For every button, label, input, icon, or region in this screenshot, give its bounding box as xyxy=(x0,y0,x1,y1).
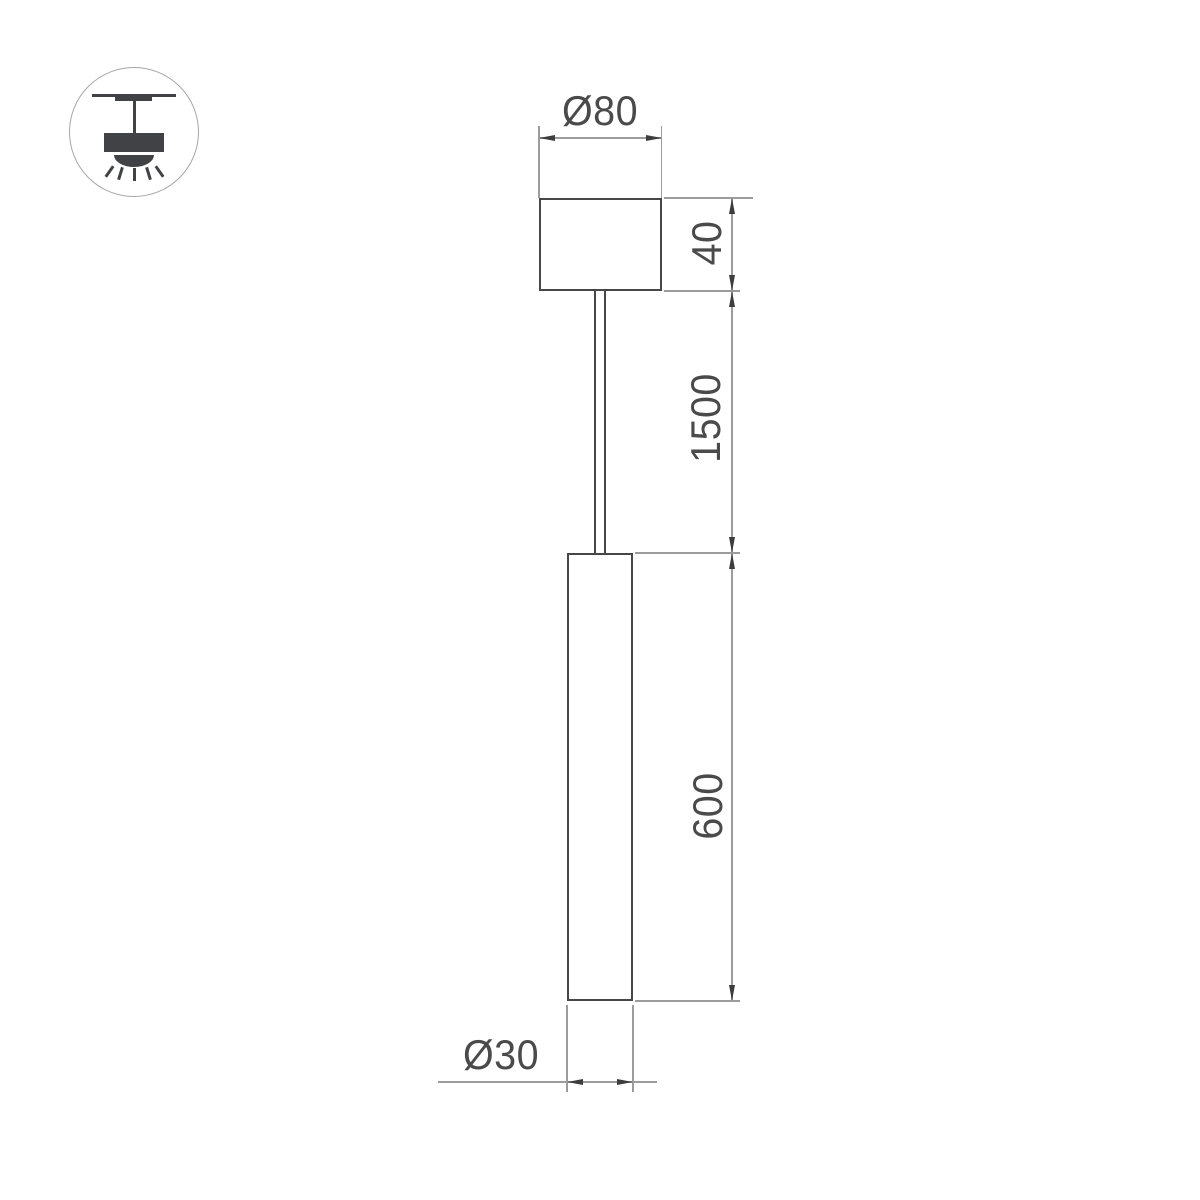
label-suspension-length: 1500 xyxy=(680,343,732,493)
arrow-left-icon xyxy=(539,135,555,141)
ext-line-tube-top xyxy=(635,552,740,554)
ext-line-tube-bottom xyxy=(635,1000,740,1002)
canopy-outline xyxy=(539,198,662,291)
lamp-dome-icon xyxy=(114,155,154,167)
light-ray-icon xyxy=(145,166,152,179)
dim-line-canopy-diameter xyxy=(539,137,662,139)
tube-outline xyxy=(567,553,633,1001)
light-ray-icon xyxy=(104,165,114,177)
pendant-dimension-drawing: Ø80 40 1500 600 Ø30 xyxy=(0,0,1200,1200)
label-canopy-height: 40 xyxy=(681,177,733,309)
label-canopy-diameter: Ø80 xyxy=(539,88,661,134)
arrow-left-icon xyxy=(567,1079,583,1085)
label-tube-length: 600 xyxy=(682,731,734,881)
arrow-up-icon xyxy=(729,291,735,307)
lamp-body-icon xyxy=(104,133,164,152)
light-ray-icon xyxy=(117,166,124,179)
light-ray-icon xyxy=(133,168,136,181)
pendant-stem-icon xyxy=(133,100,136,134)
mount-type-badge xyxy=(69,67,199,197)
label-tube-diameter: Ø30 xyxy=(440,1032,562,1078)
suspension-wire xyxy=(594,291,606,553)
arrow-down-icon xyxy=(729,985,735,1001)
arrow-up-icon xyxy=(729,553,735,569)
arrow-right-icon xyxy=(617,1079,633,1085)
arrow-right-icon xyxy=(646,135,662,141)
arrow-down-icon xyxy=(729,537,735,553)
light-ray-icon xyxy=(154,165,164,177)
